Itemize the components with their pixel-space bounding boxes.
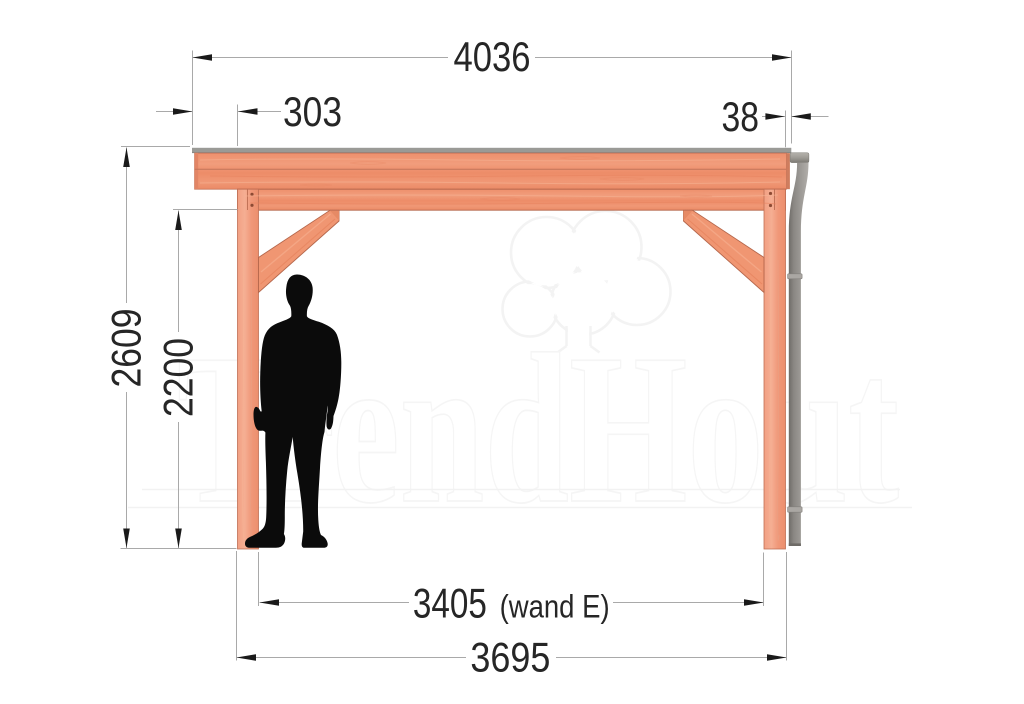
svg-text:3695: 3695	[470, 634, 550, 681]
svg-text:4036: 4036	[454, 33, 531, 80]
svg-text:2609: 2609	[103, 309, 150, 388]
svg-text:(wand E): (wand E)	[500, 589, 610, 625]
svg-text:3405: 3405	[413, 580, 487, 627]
svg-text:38: 38	[722, 93, 760, 140]
svg-text:303: 303	[283, 88, 342, 135]
svg-text:2200: 2200	[155, 338, 202, 417]
